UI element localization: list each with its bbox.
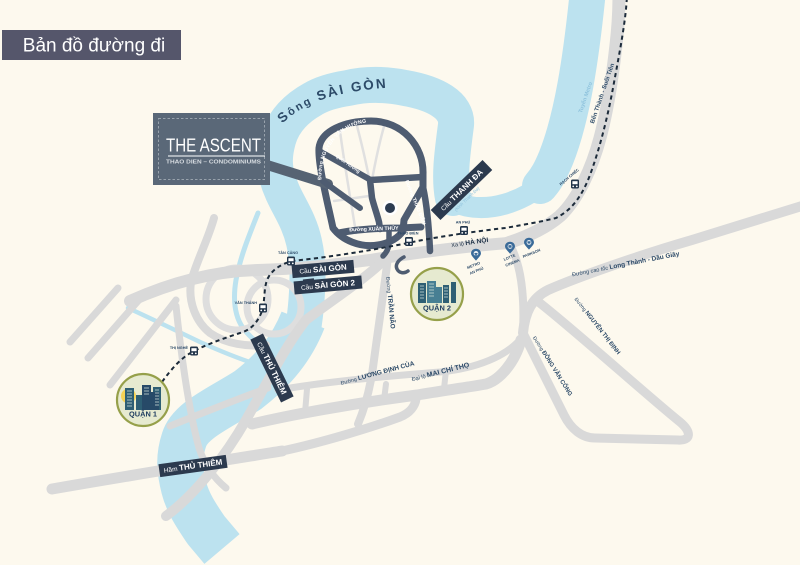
svg-text:VĂN THÁNH: VĂN THÁNH (235, 300, 258, 305)
svg-text:QUẬN 2: QUẬN 2 (423, 304, 451, 313)
svg-text:THẢO ĐIỀN: THẢO ĐIỀN (398, 231, 419, 236)
svg-text:TÂN CẢNG: TÂN CẢNG (278, 250, 298, 255)
svg-text:QUẬN 1: QUẬN 1 (129, 410, 157, 419)
svg-text:AN PHÚ: AN PHÚ (456, 220, 471, 225)
svg-text:Bản đồ đường đi: Bản đồ đường đi (23, 36, 165, 57)
svg-text:THAO DIEN – CONDOMINIUMS: THAO DIEN – CONDOMINIUMS (166, 160, 262, 166)
svg-text:THỊ NGHÈ: THỊ NGHÈ (170, 345, 189, 350)
svg-text:THE ASCENT: THE ASCENT (166, 136, 261, 156)
